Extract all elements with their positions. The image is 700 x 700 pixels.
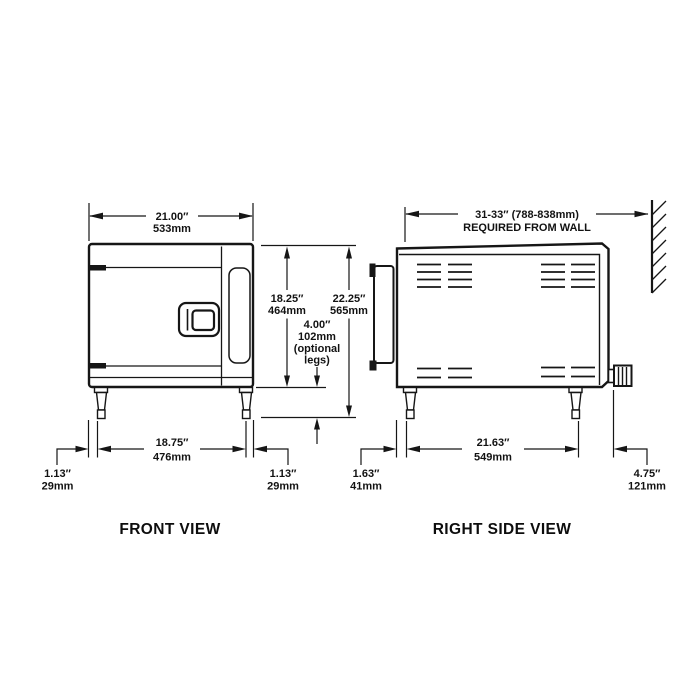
leg-height-inches-label: 4.00″ [304, 319, 331, 331]
height-dimensions: 18.25″ 464mm 22.25″ 565mm 4.00″ 102mm (o… [256, 246, 368, 445]
arrowhead-icon [254, 446, 268, 452]
wall-hatch-icon [652, 201, 666, 293]
leg-height-mm-label: 102mm [298, 331, 336, 343]
rear-extent-leader [627, 449, 647, 465]
front-leg-span-mm-label: 476mm [153, 452, 191, 464]
arrowhead-down-icon [346, 406, 352, 418]
right-leg-foot [243, 410, 251, 419]
arrowhead-icon [384, 446, 397, 452]
door-bottom-tab [370, 361, 377, 371]
front-width-inches-label: 21.00″ [156, 211, 190, 223]
arrowhead-icon [76, 446, 89, 452]
front-leg-foot [407, 410, 415, 419]
leg-height-note-line1: (optional [294, 343, 340, 355]
front-inset-leader [361, 449, 384, 465]
bottom-hinge [89, 363, 106, 369]
body-height-mm-label: 464mm [268, 305, 306, 317]
side-leg-span-mm-label: 549mm [474, 452, 512, 464]
leg-height-note-line2: legs) [304, 355, 330, 367]
front-body [89, 244, 253, 387]
body-height-dimension: 18.25″ 464mm [268, 247, 306, 388]
side-front-inset-inches-label: 1.63″ [353, 468, 380, 480]
control-panel-strip [229, 268, 250, 363]
arrowhead-down-icon [284, 376, 290, 388]
rear-leg [571, 393, 581, 411]
side-body [370, 244, 632, 388]
front-view: 21.00″ 533mm [42, 203, 300, 538]
front-width-dimension: 21.00″ 533mm [89, 203, 253, 241]
front-leg-span-inches-label: 18.75″ [156, 437, 190, 449]
leg-height-dimension: 4.00″ 102mm (optional legs) [294, 319, 340, 444]
rear-leg-bracket [569, 388, 582, 393]
side-view-title: RIGHT SIDE VIEW [433, 521, 572, 538]
front-width-mm-label: 533mm [153, 223, 191, 235]
arrowhead-icon [233, 446, 247, 452]
arrowhead-left-icon [405, 211, 419, 217]
left-leg-foot [98, 410, 106, 419]
arrowhead-right-icon [635, 211, 649, 217]
arrowhead-icon [98, 446, 112, 452]
arrowhead-right-icon [239, 213, 253, 220]
front-left-inset-inches-label: 1.13″ [44, 468, 71, 480]
arrowhead-icon [407, 446, 421, 452]
front-bottom-dimensions: 1.13″ 29mm 18.75″ 476mm 1.13″ 29mm [42, 420, 300, 493]
front-view-title: FRONT VIEW [119, 521, 220, 538]
door-top-tab [370, 264, 376, 278]
left-leg-bracket [95, 388, 108, 393]
body-height-inches-label: 18.25″ [271, 293, 305, 305]
front-left-inset-mm-label: 29mm [42, 481, 74, 493]
door-side-profile [374, 266, 394, 363]
side-bottom-dimensions: 1.63″ 41mm 21.63″ 549mm 4.75″ 121mm [350, 390, 666, 493]
left-leg [97, 393, 107, 411]
top-hinge [89, 265, 106, 271]
right-leg-bracket [240, 388, 253, 393]
front-legs [95, 388, 253, 419]
right-inset-leader [267, 449, 288, 465]
total-height-inches-label: 22.25″ [333, 293, 367, 305]
technical-drawing: 21.00″ 533mm [0, 0, 700, 700]
front-right-inset-mm-label: 29mm [267, 481, 299, 493]
side-rear-extent-mm-label: 121mm [628, 481, 666, 493]
side-front-inset-mm-label: 41mm [350, 481, 382, 493]
side-leg-span-inches-label: 21.63″ [477, 437, 511, 449]
arrowhead-left-icon [89, 213, 103, 220]
front-leg-bracket [404, 388, 417, 393]
spec-sheet-page: 21.00″ 533mm [0, 0, 700, 700]
arrowhead-up-icon [314, 418, 320, 430]
arrowhead-down-icon [314, 376, 320, 388]
left-inset-leader [57, 449, 76, 465]
right-leg [242, 393, 252, 411]
arrowhead-icon [614, 446, 628, 452]
door-handle-grip [193, 311, 215, 331]
arrowhead-icon [565, 446, 579, 452]
front-right-inset-inches-label: 1.13″ [270, 468, 297, 480]
wall-clearance-line2: REQUIRED FROM WALL [463, 222, 591, 234]
rear-leg-foot [572, 410, 580, 419]
side-legs [404, 388, 583, 419]
total-height-mm-label: 565mm [330, 305, 368, 317]
side-view: 31-33″ (788-838mm) REQUIRED FROM WALL [350, 200, 666, 538]
side-rear-extent-inches-label: 4.75″ [634, 468, 661, 480]
front-leg [406, 393, 416, 411]
wall-clearance-line1: 31-33″ (788-838mm) [475, 209, 579, 221]
